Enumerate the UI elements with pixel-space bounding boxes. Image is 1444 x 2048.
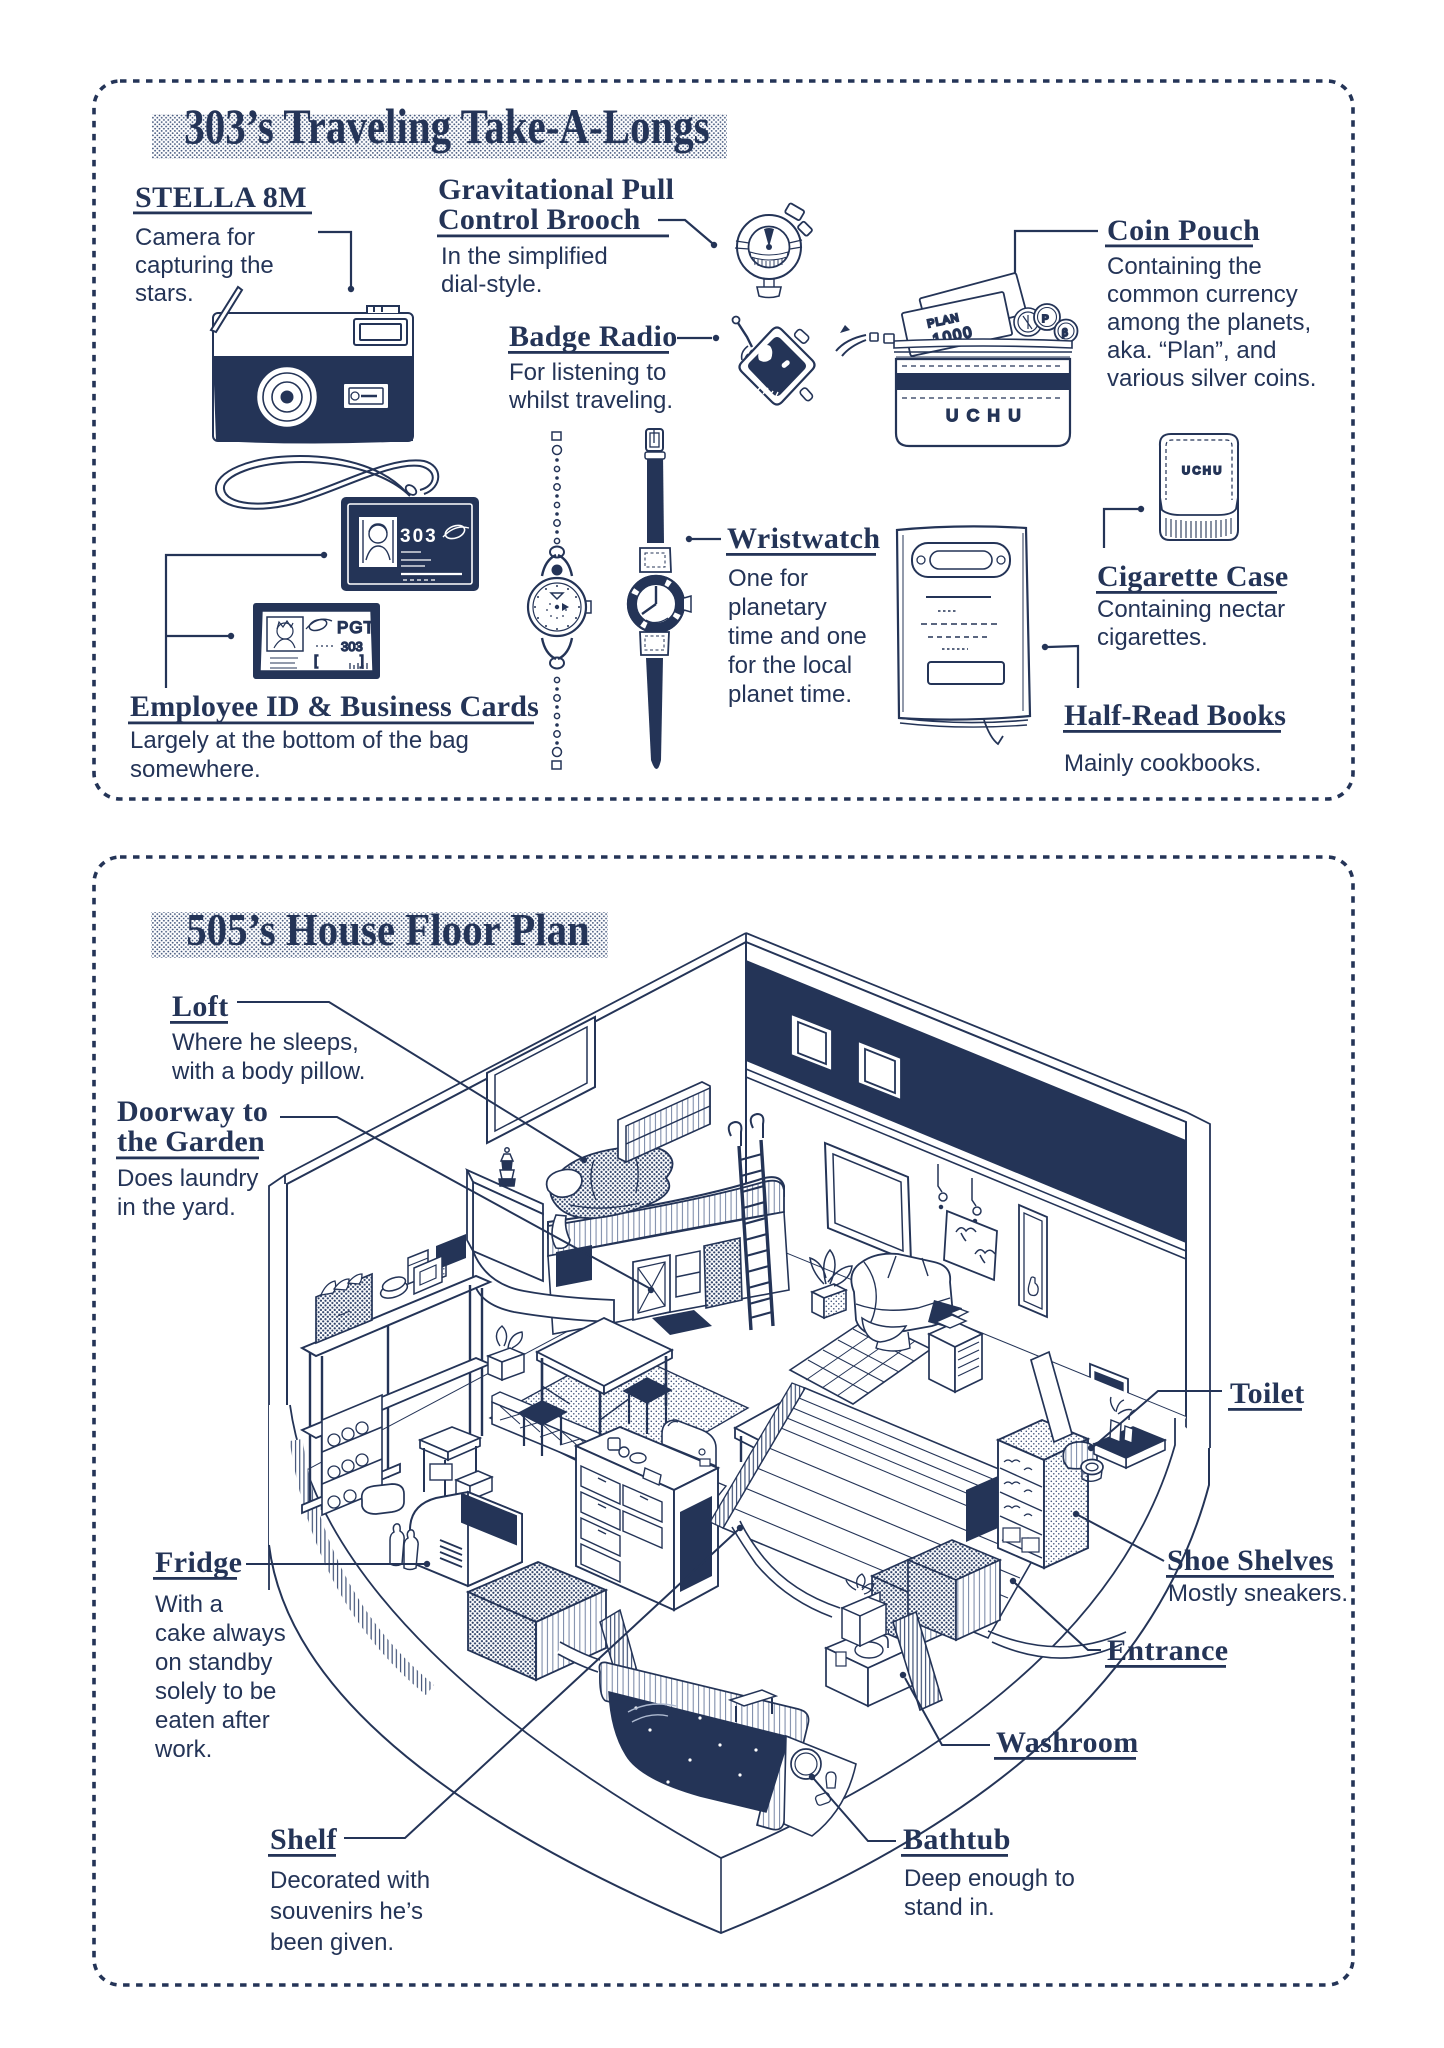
- svg-text:whilst traveling.: whilst traveling.: [508, 387, 673, 414]
- svg-text:303: 303: [400, 526, 438, 547]
- svg-text:aka. “Plan”, and: aka. “Plan”, and: [1107, 337, 1276, 364]
- svg-text:souvenirs he’s: souvenirs he’s: [270, 1898, 423, 1925]
- svg-text:stars.: stars.: [135, 280, 194, 307]
- svg-text:Bathtub: Bathtub: [903, 1823, 1011, 1856]
- svg-text:In the simplified: In the simplified: [441, 243, 608, 270]
- svg-text:the Garden: the Garden: [117, 1125, 265, 1158]
- svg-text:One for: One for: [728, 565, 808, 592]
- svg-text:Decorated with: Decorated with: [270, 1867, 430, 1894]
- svg-text:Entrance: Entrance: [1107, 1634, 1229, 1667]
- svg-text:Coin Pouch: Coin Pouch: [1107, 214, 1260, 247]
- svg-text:[: [: [314, 652, 318, 668]
- svg-text:Mainly cookbooks.: Mainly cookbooks.: [1064, 750, 1261, 777]
- svg-text:Largely at the bottom of the b: Largely at the bottom of the bag: [130, 727, 469, 754]
- svg-text:For listening to: For listening to: [509, 359, 666, 386]
- svg-text:Cigarette Case: Cigarette Case: [1097, 560, 1288, 593]
- svg-text:dial-style.: dial-style.: [441, 271, 542, 298]
- svg-text:eaten after: eaten after: [155, 1707, 270, 1734]
- svg-text:solely to be: solely to be: [155, 1678, 276, 1705]
- svg-text:Loft: Loft: [172, 990, 229, 1023]
- svg-text:Washroom: Washroom: [996, 1726, 1139, 1759]
- svg-text:PGT: PGT: [337, 618, 375, 637]
- svg-text:with a body pillow.: with a body pillow.: [171, 1058, 365, 1085]
- svg-text:common currency: common currency: [1107, 281, 1298, 308]
- svg-text:505’s House Floor Plan: 505’s House Floor Plan: [186, 905, 590, 956]
- svg-text:time and one: time and one: [728, 623, 867, 650]
- svg-text:Shoe Shelves: Shoe Shelves: [1167, 1544, 1334, 1577]
- svg-text:somewhere.: somewhere.: [130, 756, 261, 783]
- svg-text:With a: With a: [155, 1591, 224, 1618]
- svg-text:various silver coins.: various silver coins.: [1107, 365, 1316, 392]
- svg-text:UCHU: UCHU: [946, 406, 1029, 425]
- svg-text:UCHU: UCHU: [1182, 465, 1224, 477]
- svg-text:Gravitational Pull: Gravitational Pull: [438, 173, 674, 206]
- svg-text:cake always: cake always: [155, 1620, 286, 1647]
- svg-text:Deep enough to: Deep enough to: [904, 1865, 1075, 1892]
- svg-text:β: β: [1062, 328, 1068, 339]
- svg-text:Containing nectar: Containing nectar: [1097, 596, 1285, 623]
- svg-text:Does laundry: Does laundry: [117, 1165, 258, 1192]
- svg-text:planet time.: planet time.: [728, 681, 852, 708]
- svg-text:Camera for: Camera for: [135, 224, 255, 251]
- svg-text:Badge Radio: Badge Radio: [509, 320, 678, 353]
- svg-text:been given.: been given.: [270, 1929, 394, 1956]
- svg-text:planetary: planetary: [728, 594, 827, 621]
- svg-text:Mostly sneakers.: Mostly sneakers.: [1168, 1580, 1348, 1607]
- svg-text:303’s Traveling Take-A-Longs: 303’s Traveling Take-A-Longs: [184, 98, 709, 154]
- svg-text:for the local: for the local: [728, 652, 852, 679]
- svg-text:STELLA 8M: STELLA 8M: [135, 181, 307, 214]
- svg-text:among the planets,: among the planets,: [1107, 309, 1311, 336]
- svg-text:Employee ID & Business Cards: Employee ID & Business Cards: [130, 690, 539, 723]
- svg-text:stand in.: stand in.: [904, 1894, 995, 1921]
- svg-text:P: P: [1042, 314, 1049, 325]
- svg-text:on standby: on standby: [155, 1649, 272, 1676]
- svg-text:Doorway to: Doorway to: [117, 1095, 268, 1128]
- svg-text:Wristwatch: Wristwatch: [727, 522, 880, 555]
- svg-text:work.: work.: [154, 1736, 212, 1763]
- svg-text:Where he sleeps,: Where he sleeps,: [172, 1029, 359, 1056]
- svg-text:cigarettes.: cigarettes.: [1097, 624, 1208, 651]
- svg-text:Toilet: Toilet: [1230, 1377, 1305, 1410]
- svg-text:capturing the: capturing the: [135, 252, 274, 279]
- svg-text:in the yard.: in the yard.: [117, 1194, 236, 1221]
- svg-text:Fridge: Fridge: [155, 1546, 242, 1579]
- svg-text:Containing the: Containing the: [1107, 253, 1262, 280]
- svg-text:Shelf: Shelf: [270, 1823, 338, 1856]
- svg-text:Control Brooch: Control Brooch: [438, 203, 641, 236]
- svg-text:Half-Read Books: Half-Read Books: [1064, 699, 1286, 732]
